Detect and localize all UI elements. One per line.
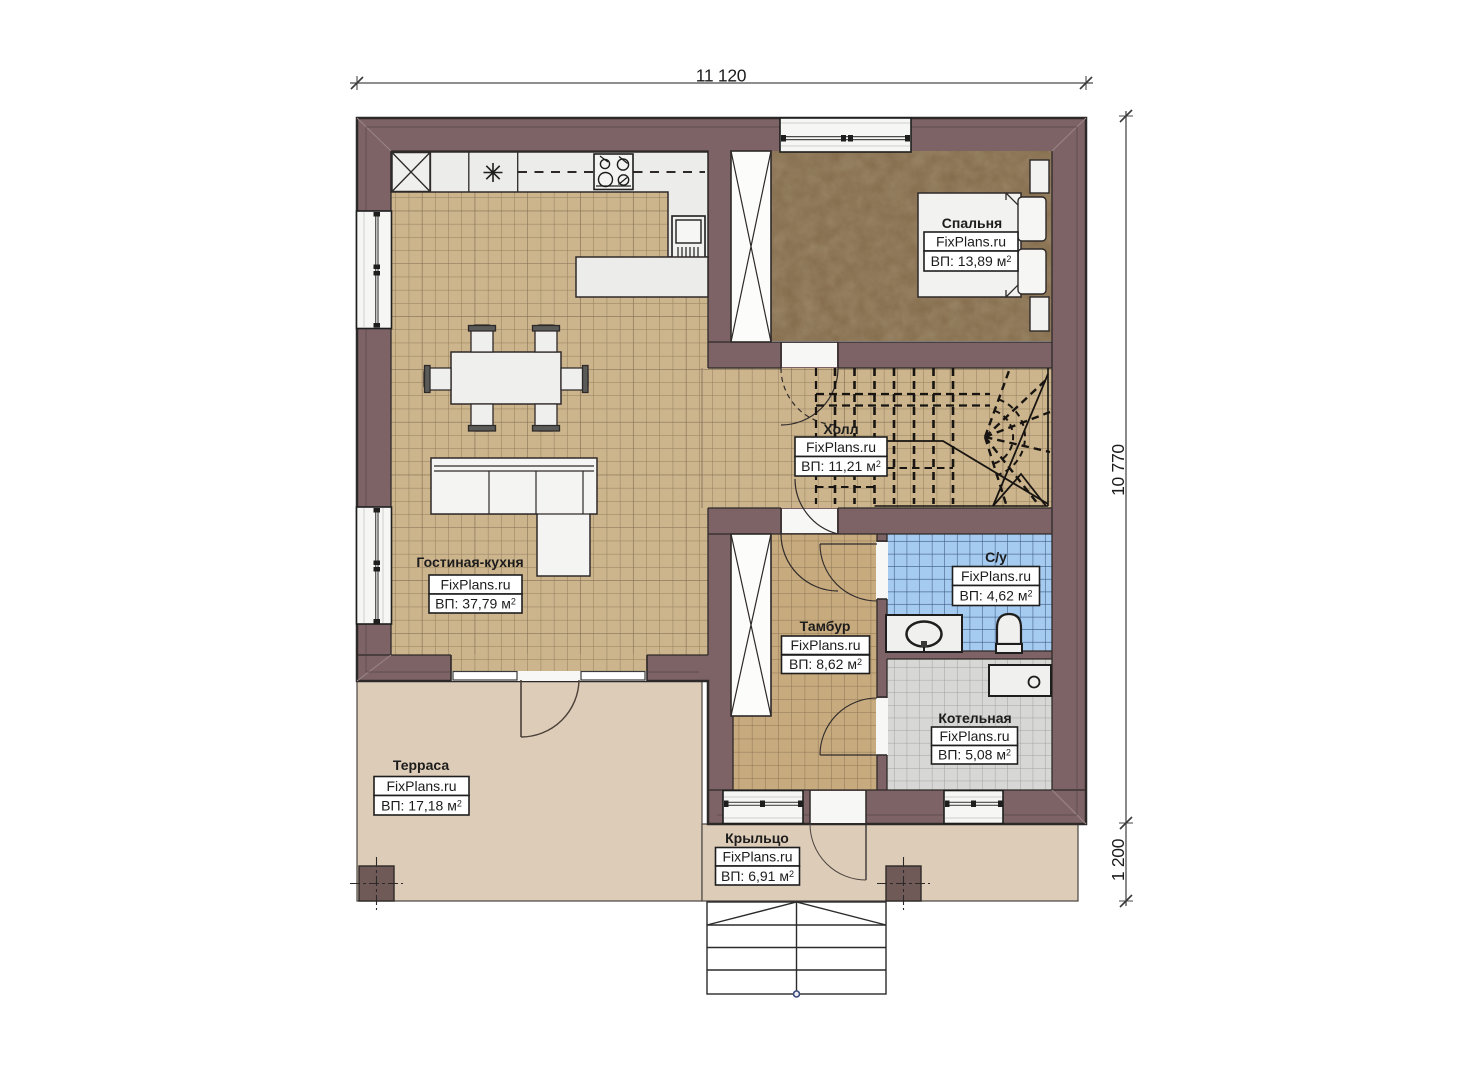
svg-text:FixPlans.ru: FixPlans.ru <box>440 577 510 593</box>
svg-text:ВП: 4,62 м2: ВП: 4,62 м2 <box>960 588 1033 604</box>
svg-text:ВП: 11,21 м2: ВП: 11,21 м2 <box>801 458 881 474</box>
svg-text:FixPlans.ru: FixPlans.ru <box>961 568 1031 584</box>
svg-text:10 770: 10 770 <box>1108 444 1128 496</box>
svg-text:FixPlans.ru: FixPlans.ru <box>936 234 1006 250</box>
svg-text:Спальня: Спальня <box>942 215 1002 231</box>
svg-text:ВП: 6,91 м2: ВП: 6,91 м2 <box>721 868 794 884</box>
svg-text:Крыльцо: Крыльцо <box>725 830 789 846</box>
svg-text:ВП: 13,89 м2: ВП: 13,89 м2 <box>931 253 1012 269</box>
svg-text:FixPlans.ru: FixPlans.ru <box>790 637 860 653</box>
svg-text:Котельная: Котельная <box>938 710 1011 726</box>
svg-text:ВП: 8,62 м2: ВП: 8,62 м2 <box>789 656 862 672</box>
svg-text:С/у: С/у <box>985 549 1007 565</box>
svg-text:1 200: 1 200 <box>1108 838 1128 881</box>
svg-text:FixPlans.ru: FixPlans.ru <box>939 728 1009 744</box>
svg-text:FixPlans.ru: FixPlans.ru <box>806 439 876 455</box>
svg-text:Терраса: Терраса <box>393 757 449 773</box>
svg-text:ВП: 5,08 м2: ВП: 5,08 м2 <box>938 747 1011 763</box>
svg-text:11 120: 11 120 <box>696 66 747 86</box>
svg-text:Тамбур: Тамбур <box>800 618 851 634</box>
svg-text:ВП: 37,79 м2: ВП: 37,79 м2 <box>435 596 516 612</box>
svg-text:ВП: 17,18 м2: ВП: 17,18 м2 <box>381 798 462 814</box>
svg-text:Холл: Холл <box>823 421 858 437</box>
svg-text:FixPlans.ru: FixPlans.ru <box>722 849 792 865</box>
svg-text:FixPlans.ru: FixPlans.ru <box>386 778 456 794</box>
svg-text:Гостиная-кухня: Гостиная-кухня <box>416 554 523 570</box>
